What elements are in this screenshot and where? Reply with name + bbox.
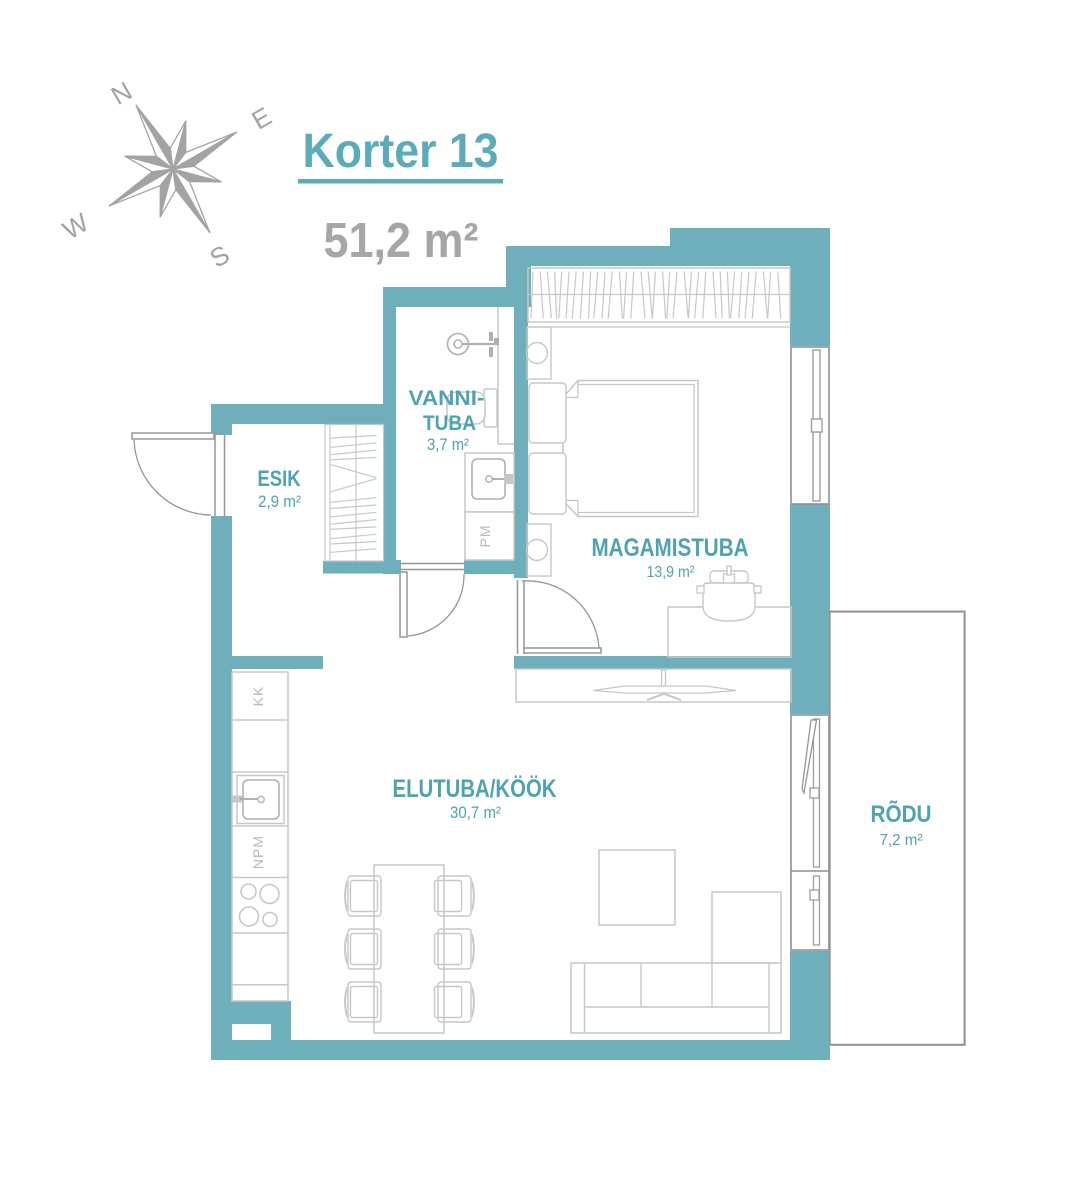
svg-text:KK: KK — [250, 686, 266, 707]
svg-text:ELUTUBA/KÖÖK: ELUTUBA/KÖÖK — [393, 774, 557, 803]
svg-text:13,9 m²: 13,9 m² — [647, 564, 696, 581]
svg-text:30,7 m²: 30,7 m² — [450, 804, 501, 822]
svg-text:51,2 m²: 51,2 m² — [324, 214, 479, 268]
svg-text:MAGAMISTUBA: MAGAMISTUBA — [592, 534, 749, 562]
svg-text:VANNI-: VANNI- — [409, 387, 485, 410]
svg-text:PM: PM — [477, 525, 493, 548]
svg-text:2,9 m²: 2,9 m² — [258, 493, 301, 511]
svg-text:Korter 13: Korter 13 — [303, 125, 499, 178]
svg-text:TUBA: TUBA — [423, 412, 476, 435]
svg-text:NPM: NPM — [250, 835, 266, 869]
svg-text:3,7 m²: 3,7 m² — [427, 436, 469, 454]
svg-text:RÕDU: RÕDU — [871, 800, 932, 828]
svg-text:ESIK: ESIK — [258, 466, 301, 491]
svg-text:7,2 m²: 7,2 m² — [880, 832, 924, 849]
